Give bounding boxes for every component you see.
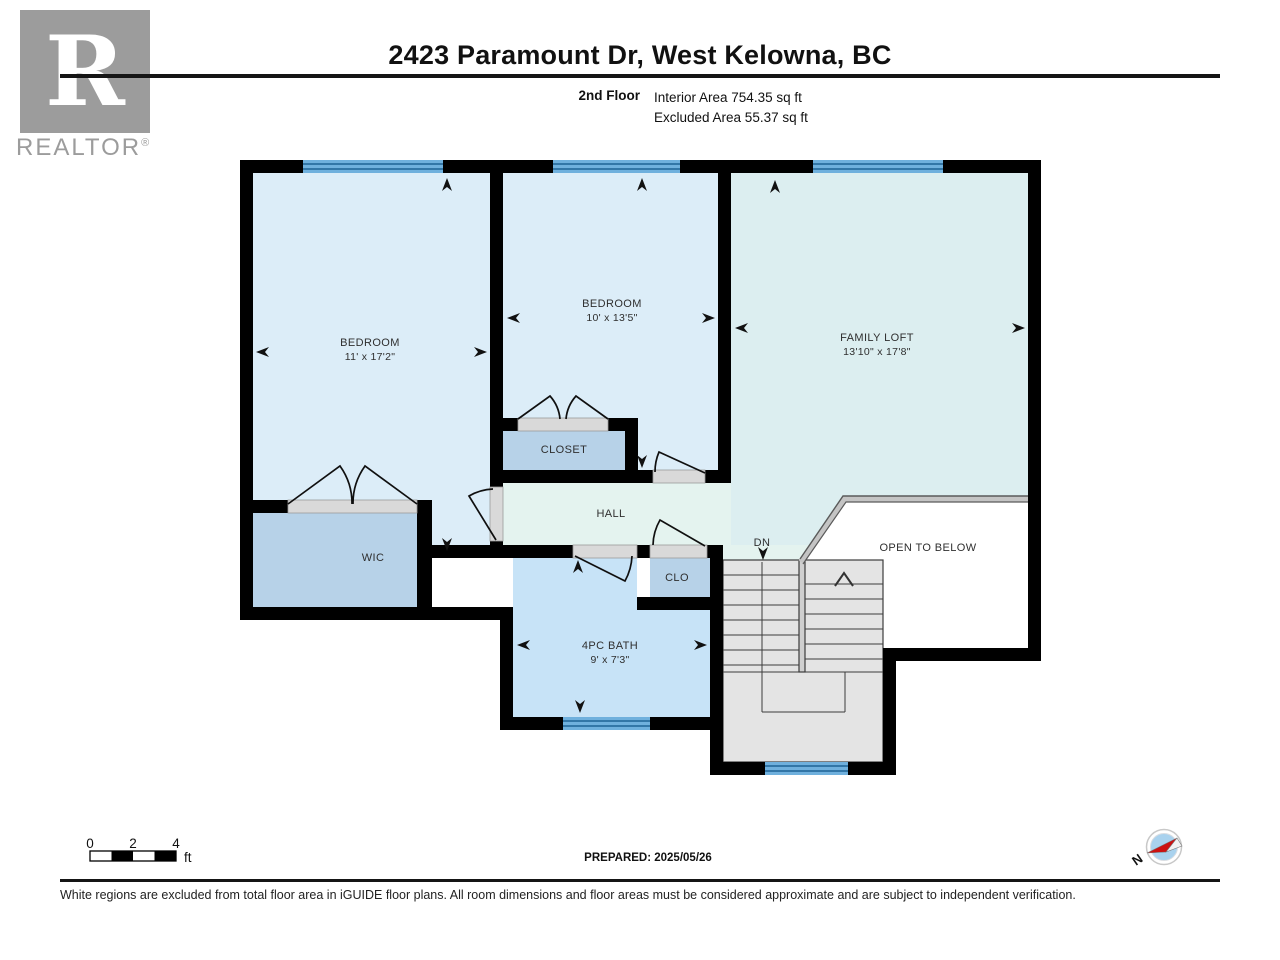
scale-2: 2	[129, 836, 137, 851]
label-closet: CLOSET	[541, 444, 587, 456]
door-gap-bath	[573, 545, 637, 558]
dims-bath: 9' x 7'3"	[590, 654, 629, 666]
footer-divider	[60, 879, 1220, 882]
door-gap-clo	[650, 545, 707, 558]
header-divider	[60, 74, 1220, 78]
window-family-loft	[813, 160, 943, 173]
label-dn: DN	[754, 537, 771, 549]
dims-family-loft: 13'10" x 17'8"	[843, 346, 911, 358]
scale-0: 0	[86, 836, 94, 851]
scale-bar: 0 2 4 ft	[86, 836, 192, 865]
label-bedroom-2: BEDROOM	[582, 298, 642, 310]
prepared-date: PREPARED: 2025/05/26	[584, 852, 712, 864]
scale-unit: ft	[184, 850, 192, 865]
label-hall: HALL	[596, 508, 625, 520]
disclaimer-text: White regions are excluded from total fl…	[60, 888, 1220, 902]
window-bedroom-2	[553, 160, 680, 173]
window-stairwell	[765, 762, 848, 775]
stairs	[723, 560, 883, 762]
label-open-to-below: OPEN TO BELOW	[879, 542, 976, 554]
label-clo: CLO	[665, 572, 689, 584]
label-bath: 4PC BATH	[582, 640, 638, 652]
room-wic	[253, 512, 417, 607]
dims-bedroom-1: 11' x 17'2"	[345, 351, 396, 363]
scale-4: 4	[172, 836, 180, 851]
window-bedroom-1	[303, 160, 443, 173]
dims-bedroom-2: 10' x 13'5"	[586, 312, 637, 324]
room-family-loft	[731, 173, 1028, 545]
door-gap-bedroom-2	[653, 470, 705, 483]
room-fills	[253, 173, 1028, 717]
compass-icon: N	[1129, 830, 1182, 869]
label-bedroom-1: BEDROOM	[340, 337, 400, 349]
realtor-logo: R	[20, 10, 150, 133]
realtor-logo-letter: R	[45, 24, 125, 120]
compass-n-label: N	[1129, 851, 1145, 869]
label-family-loft: FAMILY LOFT	[840, 332, 914, 344]
window-bath	[563, 717, 650, 730]
floor-plan-canvas: BEDROOM 11' x 17'2" BEDROOM 10' x 13'5" …	[0, 0, 1280, 960]
door-gap-closet	[518, 418, 608, 431]
label-wic: WIC	[362, 552, 385, 564]
